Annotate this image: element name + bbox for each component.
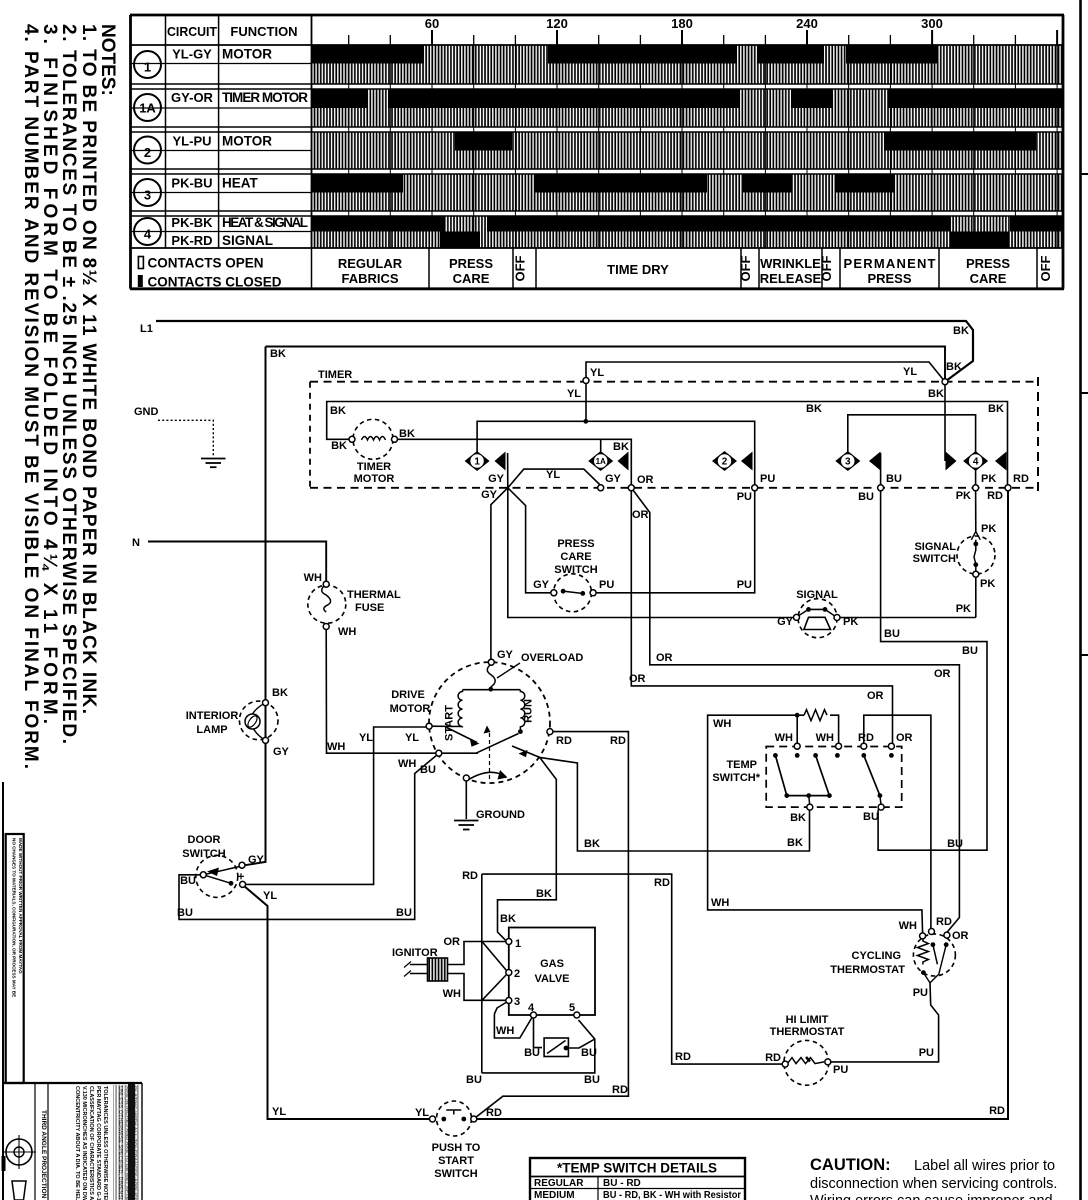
svg-text:WH: WH	[443, 988, 461, 1000]
svg-text:180: 180	[671, 16, 693, 31]
svg-text:CAUTION:: CAUTION:	[810, 1156, 891, 1174]
svg-text:SWITCH*: SWITCH*	[712, 772, 760, 784]
svg-text:WH: WH	[899, 920, 917, 932]
svg-text:CARE: CARE	[560, 551, 591, 563]
svg-text:240: 240	[796, 16, 818, 31]
svg-text:BK: BK	[399, 428, 415, 440]
svg-text:PK: PK	[980, 578, 995, 590]
svg-text:RD: RD	[556, 735, 572, 747]
svg-text:GY-OR: GY-OR	[171, 90, 214, 105]
svg-text:PK-BU: PK-BU	[171, 176, 212, 191]
svg-text:PK: PK	[843, 616, 858, 628]
svg-text:GY: GY	[533, 579, 550, 591]
svg-text:RD: RD	[936, 916, 952, 928]
svg-text:GY: GY	[273, 746, 290, 758]
svg-text:OFF: OFF	[738, 255, 753, 281]
svg-text:BU: BU	[947, 838, 963, 850]
svg-text:YL: YL	[590, 367, 604, 379]
svg-text:VALVE: VALVE	[534, 973, 569, 985]
svg-text:OR: OR	[896, 732, 913, 744]
svg-text:OR: OR	[867, 690, 884, 702]
svg-text:BK: BK	[272, 687, 288, 699]
svg-text:2: 2	[514, 968, 520, 980]
svg-text:OR: OR	[637, 474, 654, 486]
svg-text:THIRD ANGLE PROJECTION: THIRD ANGLE PROJECTION	[40, 1110, 47, 1199]
svg-text:PU: PU	[760, 473, 775, 485]
svg-text:BU: BU	[584, 1074, 600, 1086]
svg-text:RD: RD	[654, 877, 670, 889]
svg-text:WH: WH	[711, 897, 729, 909]
svg-text:3: 3	[845, 457, 851, 468]
svg-text:disconnection when servicing: disconnection when servicing controls.	[810, 1176, 1057, 1192]
svg-text:BK: BK	[806, 403, 822, 415]
svg-text:BK: BK	[536, 888, 552, 900]
svg-text:OFF: OFF	[513, 255, 528, 281]
svg-text:SIGNAL: SIGNAL	[914, 541, 956, 553]
svg-text:OR: OR	[656, 652, 673, 664]
svg-text:BU: BU	[524, 1047, 540, 1059]
svg-text:PRESS: PRESS	[557, 538, 594, 550]
svg-text:TIMER MOTOR: TIMER MOTOR	[222, 90, 308, 105]
svg-text:YL: YL	[567, 388, 581, 400]
svg-text:BK: BK	[331, 440, 347, 452]
svg-text:BK: BK	[330, 405, 346, 417]
svg-text:SWITCH: SWITCH	[554, 564, 597, 576]
svg-text:Wiring errors can cause im: Wiring errors can cause improper and	[810, 1193, 1053, 1200]
svg-text:PK: PK	[981, 523, 996, 535]
svg-text:BU: BU	[466, 1074, 482, 1086]
svg-text:1A: 1A	[596, 457, 606, 466]
svg-text:OR: OR	[444, 936, 461, 948]
svg-text:N: N	[132, 537, 140, 549]
svg-text:INTERIOR: INTERIOR	[186, 710, 239, 722]
svg-text:GY: GY	[497, 649, 514, 661]
svg-text:THERMOSTAT: THERMOSTAT	[830, 964, 905, 976]
svg-text:MOTOR: MOTOR	[390, 703, 431, 715]
svg-text:PRESS: PRESS	[867, 271, 911, 286]
svg-text:WH: WH	[327, 741, 345, 753]
svg-text:4: 4	[973, 457, 979, 468]
svg-text:1. TO BE PRINTED ON 8½ X 11 W: 1. TO BE PRINTED ON 8½ X 11 WHITE BOND P…	[78, 24, 99, 714]
svg-text:PU: PU	[737, 491, 752, 503]
svg-text:5: 5	[569, 1002, 575, 1014]
svg-text:TIMER: TIMER	[318, 369, 352, 381]
svg-text:GY: GY	[777, 616, 794, 628]
svg-text:REGULAR: REGULAR	[338, 256, 403, 271]
svg-text:YL: YL	[359, 732, 373, 744]
svg-text:HEAT: HEAT	[222, 176, 259, 191]
svg-text:OR: OR	[934, 668, 951, 680]
svg-text:CLASSIFICATION OF CHARACTERIST: CLASSIFICATION OF CHARACTERISTICS ARE	[88, 1086, 94, 1200]
svg-text:OVERLOAD: OVERLOAD	[521, 652, 583, 664]
svg-text:1: 1	[515, 938, 521, 950]
svg-text:PU: PU	[913, 987, 928, 999]
svg-text:START: START	[444, 705, 456, 741]
svg-text:YL: YL	[546, 469, 560, 481]
svg-text:4. PART NUMBER AND REVISION M: 4. PART NUMBER AND REVISION MUST BE VISI…	[20, 24, 41, 769]
svg-text:BK: BK	[988, 403, 1004, 415]
svg-text:GY: GY	[248, 854, 265, 866]
svg-text:2: 2	[722, 457, 728, 468]
svg-text:OR: OR	[629, 673, 646, 685]
svg-text:300: 300	[921, 16, 943, 31]
svg-text:RD: RD	[989, 1105, 1005, 1117]
svg-text:WRINKLE: WRINKLE	[760, 256, 821, 271]
svg-text:4: 4	[144, 227, 152, 242]
svg-text:*TEMP SWITCH DETAILS: *TEMP SWITCH DETAILS	[557, 1161, 717, 1176]
svg-text:Label all wires prior to: Label all wires prior to	[914, 1158, 1055, 1174]
svg-text:OFF: OFF	[1038, 255, 1053, 281]
svg-text:HEAT & SIGNAL: HEAT & SIGNAL	[222, 215, 308, 230]
svg-text:PU: PU	[919, 1047, 934, 1059]
svg-text:PRESS: PRESS	[449, 256, 493, 271]
svg-text:PK: PK	[981, 473, 996, 485]
svg-text:BK: BK	[500, 913, 516, 925]
svg-text:BK: BK	[953, 325, 969, 337]
svg-text:BU: BU	[177, 907, 193, 919]
svg-text:IGNITOR: IGNITOR	[392, 947, 438, 959]
svg-text:CYCLING: CYCLING	[852, 950, 902, 962]
svg-text:HI LIMIT: HI LIMIT	[786, 1014, 829, 1026]
svg-text:RD: RD	[462, 870, 478, 882]
svg-text:PU: PU	[599, 579, 614, 591]
svg-text:YL-GY: YL-GY	[172, 47, 212, 62]
svg-text:RD: RD	[612, 1084, 628, 1096]
svg-text:OFF: OFF	[819, 255, 834, 281]
svg-text:BK: BK	[613, 441, 629, 453]
svg-text:FUSE: FUSE	[355, 602, 384, 614]
svg-text:DRIVE: DRIVE	[391, 689, 425, 701]
svg-text:DOOR: DOOR	[188, 834, 221, 846]
svg-text:BU: BU	[863, 811, 879, 823]
svg-text:RD: RD	[765, 1052, 781, 1064]
svg-text:PU: PU	[833, 1064, 848, 1076]
svg-text:YL: YL	[405, 732, 419, 744]
svg-text:PK-BK: PK-BK	[171, 215, 213, 230]
svg-text:MOTOR: MOTOR	[222, 134, 272, 149]
svg-text:GY: GY	[605, 473, 622, 485]
svg-text:RD: RD	[610, 735, 626, 747]
svg-text:OR: OR	[952, 930, 969, 942]
svg-text:WH: WH	[496, 1025, 514, 1037]
svg-text:YL-PU: YL-PU	[173, 134, 212, 149]
svg-text:BU: BU	[581, 1047, 597, 1059]
svg-text:YL: YL	[415, 1107, 429, 1119]
svg-text:MEDIUM: MEDIUM	[534, 1190, 575, 1200]
svg-text:BU - RD: BU - RD	[603, 1178, 641, 1189]
svg-text:WH: WH	[398, 758, 416, 770]
svg-text:OR: OR	[632, 509, 649, 521]
svg-text:WH: WH	[713, 718, 731, 730]
svg-text:BU: BU	[396, 907, 412, 919]
svg-text:BU: BU	[858, 491, 874, 503]
svg-text:RUN: RUN	[523, 699, 535, 723]
svg-text:SIGNAL: SIGNAL	[222, 233, 273, 248]
svg-text:BK: BK	[928, 388, 944, 400]
svg-text:THERMOSTAT: THERMOSTAT	[770, 1026, 845, 1038]
svg-text:RD: RD	[675, 1051, 691, 1063]
svg-text:GY: GY	[481, 489, 498, 501]
svg-text:BK: BK	[270, 348, 286, 360]
svg-text:TOLERANCES UNLESS OTHERWISE NO: TOLERANCES UNLESS OTHERWISE NOTED	[102, 1086, 108, 1200]
svg-text:PER MAYTAG CORPORATE STANDARD: PER MAYTAG CORPORATE STANDARD G-11	[95, 1086, 101, 1200]
svg-text:MOTOR: MOTOR	[354, 473, 395, 485]
svg-text:NOTES:: NOTES:	[97, 24, 118, 96]
svg-text:CIRCUIT: CIRCUIT	[167, 24, 217, 39]
svg-text:TIMER: TIMER	[357, 461, 391, 473]
svg-text:RD: RD	[486, 1107, 502, 1119]
svg-text:PUSH TO: PUSH TO	[432, 1142, 481, 1154]
svg-text:MADE WITHOUT PRIOR WRITTEN APP: MADE WITHOUT PRIOR WRITTEN APPROVAL FROM…	[18, 838, 23, 974]
svg-text:4: 4	[528, 1002, 535, 1014]
svg-text:SWITCH: SWITCH	[913, 553, 956, 565]
svg-text:1: 1	[474, 457, 480, 468]
svg-text:PK-RD: PK-RD	[171, 233, 212, 248]
svg-text:RELEASE: RELEASE	[760, 271, 822, 286]
svg-text:BK: BK	[787, 837, 803, 849]
svg-text:CONTACTS OPEN: CONTACTS OPEN	[148, 256, 264, 271]
svg-text:TEMP: TEMP	[726, 759, 757, 771]
svg-text:RD: RD	[987, 490, 1003, 502]
svg-text:3: 3	[514, 996, 520, 1008]
svg-text:BU: BU	[962, 645, 978, 657]
svg-text:WH: WH	[338, 626, 356, 638]
svg-text:BU: BU	[886, 473, 902, 485]
svg-text:LAMP: LAMP	[196, 724, 227, 736]
svg-text:CARE: CARE	[453, 271, 490, 286]
svg-text:PK: PK	[956, 490, 971, 502]
svg-text:PERMANENT: PERMANENT	[844, 256, 936, 271]
svg-text:WH: WH	[775, 732, 793, 744]
svg-text:BK: BK	[584, 838, 600, 850]
svg-text:BK: BK	[946, 361, 962, 373]
svg-text:SWITCH: SWITCH	[182, 848, 225, 860]
svg-text:60: 60	[425, 16, 439, 31]
svg-text:YL: YL	[903, 366, 917, 378]
svg-text:YL: YL	[272, 1106, 286, 1118]
svg-text:CONCENTRICITY ABOUT A DIA. TO: CONCENTRICITY ABOUT A DIA. TO BE HELD	[74, 1086, 80, 1200]
svg-text:START: START	[438, 1155, 474, 1167]
svg-text:SIGNAL: SIGNAL	[796, 589, 838, 601]
svg-text:REGULAR: REGULAR	[534, 1178, 584, 1189]
svg-text:PU: PU	[737, 579, 752, 591]
svg-text:CONTACTS CLOSED: CONTACTS CLOSED	[148, 274, 282, 289]
svg-text:PK: PK	[956, 603, 971, 615]
svg-text:WH: WH	[816, 732, 834, 744]
svg-text:GND: GND	[134, 406, 159, 418]
svg-text:L1: L1	[140, 323, 153, 335]
svg-text:V.130 MICROINCHES AS INDICATED: V.130 MICROINCHES AS INDICATED ON DWG	[81, 1086, 87, 1200]
svg-text:2: 2	[144, 145, 151, 160]
svg-text:MOTOR: MOTOR	[222, 47, 272, 62]
svg-text:BK: BK	[790, 812, 806, 824]
svg-text:RD: RD	[858, 732, 874, 744]
svg-text:GROUND: GROUND	[476, 809, 525, 821]
svg-text:NO CHANGES TO MATERIALS, CONFI: NO CHANGES TO MATERIALS, CONFIGURATION, …	[12, 838, 17, 997]
svg-text:YL: YL	[263, 890, 277, 902]
svg-text:BU: BU	[180, 875, 196, 887]
svg-text:1A: 1A	[139, 101, 156, 116]
svg-text:120: 120	[546, 16, 568, 31]
svg-text:WH: WH	[304, 572, 322, 584]
svg-text:PRESS: PRESS	[966, 256, 1010, 271]
svg-text:BU: BU	[884, 628, 900, 640]
svg-text:CARE: CARE	[970, 271, 1007, 286]
svg-text:SWITCH: SWITCH	[434, 1168, 477, 1180]
svg-text:FABRICS: FABRICS	[341, 271, 398, 286]
svg-text:TIME DRY: TIME DRY	[607, 262, 669, 277]
svg-text:1: 1	[144, 60, 151, 75]
svg-text:BU: BU	[420, 764, 436, 776]
svg-text:THERMAL: THERMAL	[347, 589, 401, 601]
svg-text:BU - RD, BK - WH with Resistor: BU - RD, BK - WH with Resistor	[603, 1190, 741, 1200]
svg-text:3: 3	[144, 188, 151, 203]
svg-text:GAS: GAS	[540, 958, 564, 970]
svg-text:GY: GY	[488, 473, 505, 485]
svg-text:RD: RD	[1013, 473, 1029, 485]
svg-text:FUNCTION: FUNCTION	[230, 24, 297, 39]
svg-text:2. TOLERANCES TO BE ± .25 INC: 2. TOLERANCES TO BE ± .25 INCH UNLESS OT…	[58, 24, 79, 744]
